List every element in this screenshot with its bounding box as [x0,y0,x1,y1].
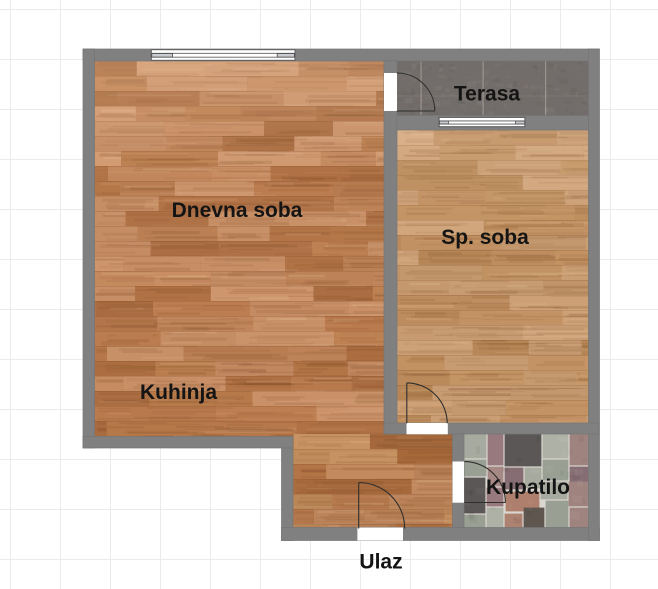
svg-text:Terasa: Terasa [454,82,520,105]
svg-text:Kupatilo: Kupatilo [486,476,570,499]
svg-text:Dnevna soba: Dnevna soba [172,199,303,222]
svg-text:Kuhinja: Kuhinja [140,381,217,404]
svg-text:Ulaz: Ulaz [359,550,402,573]
svg-text:Sp. soba: Sp. soba [441,226,529,249]
